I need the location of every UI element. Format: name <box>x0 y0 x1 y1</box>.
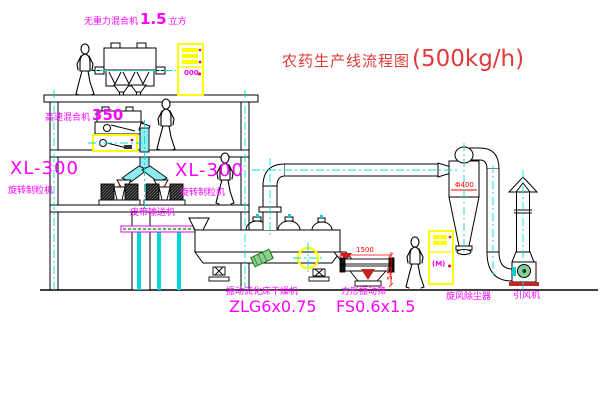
title-text: 农药生产线流程图 <box>282 50 410 71</box>
control-cabinet-lower <box>429 231 453 284</box>
process-flow-diagram: 农药生产线流程图 (500kg/h) 无重力混合机 1.5 立方 高速混合机 3… <box>0 0 600 403</box>
label-granulator-left-model: XL-300 <box>10 160 79 178</box>
induced-draft-fan <box>509 262 539 286</box>
dimension-1500: 1500 <box>356 247 374 254</box>
label-fan: 引风机 <box>513 292 540 301</box>
upper-cabinet-display: 000 <box>184 70 199 77</box>
dryer-spring-foot-right <box>309 269 329 281</box>
dimension-phi400: Φ400 <box>455 182 474 189</box>
title-capacity: (500kg/h) <box>412 46 524 72</box>
lower-cabinet-display: (M) <box>432 261 445 268</box>
granulator-right <box>144 184 185 205</box>
label-sieve-model: FS0.6x1.5 <box>336 299 415 315</box>
dimension-540: 540 <box>387 267 394 280</box>
label-dryer-model: ZLG6x0.75 <box>229 299 317 315</box>
label-high-speed-mixer: 高速混合机 350 <box>45 108 123 123</box>
dryer-spring-foot-left <box>209 267 229 281</box>
label-cyclone: 旋风除尘器 <box>446 293 491 302</box>
label-dryer-name: 振动流化床干燥机 <box>226 288 298 297</box>
worker-figure-ground <box>406 237 424 288</box>
gravity-free-mixer <box>88 43 172 95</box>
worker-figure-second-floor <box>157 99 175 150</box>
granulator-left <box>99 184 140 205</box>
label-gravity-free-mixer: 无重力混合机 1.5 立方 <box>84 12 187 27</box>
label-sieve-name: 方形振动筛 <box>341 288 386 297</box>
label-granulator-right-model: XL-300 <box>175 162 244 180</box>
worker-figure-top-floor <box>76 44 94 95</box>
label-granulator-right-name: 旋转制粒机 <box>180 189 225 198</box>
label-granulator-left-name: 旋转制粒机 <box>8 187 53 196</box>
label-belt-conveyor: 皮带输送机 <box>130 209 175 218</box>
drawing-title: 农药生产线流程图 (500kg/h) <box>282 46 524 72</box>
cyclone-separator <box>449 147 512 281</box>
